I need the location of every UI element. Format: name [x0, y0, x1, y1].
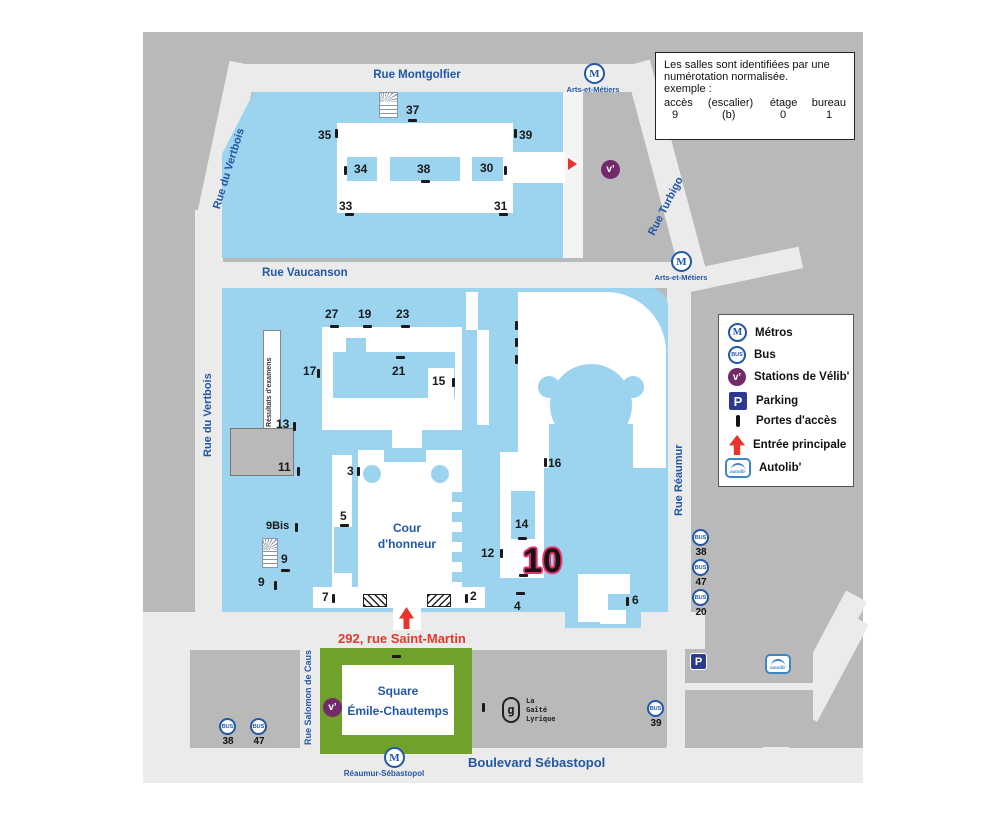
legend-row-autolib: autolib’ Autolib' [725, 458, 801, 478]
building-21-annex [346, 338, 366, 352]
access-door-tick [295, 523, 298, 532]
metro-icon: M [584, 63, 605, 84]
access-number-4: 4 [514, 599, 521, 613]
bus-stop-icon: BUS [219, 718, 236, 735]
legend-row-entree: Entrée principale [728, 435, 846, 455]
access-door-tick [330, 325, 339, 328]
access-number-9b: 9 [258, 575, 265, 589]
cour-tower-west [363, 465, 381, 483]
access-door-tick [626, 597, 629, 606]
legend-row-metro: M Métros [728, 323, 793, 342]
info-col-etage: étage [770, 97, 812, 109]
info-val-escalier: (b) [708, 109, 770, 121]
velib-station-icon: v’ [323, 698, 342, 717]
parking-icon: P [690, 653, 707, 670]
street-label-vaucanson: Rue Vaucanson [262, 267, 348, 279]
autolib-icon-text: autolib’ [730, 470, 746, 474]
velib-station-icon: v’ [601, 160, 620, 179]
access-door-tick [515, 338, 518, 347]
autolib-icon: autolib’ [725, 458, 751, 478]
velib-station-icon: v’ [728, 368, 746, 386]
metro-icon: M [728, 323, 747, 342]
access-door-tick [408, 119, 417, 122]
legend-label-entree: Entrée principale [753, 439, 846, 451]
info-val-acces: 9 [664, 109, 708, 121]
street-label-salomon: Rue Salomon de Caus [303, 650, 313, 745]
cour-tooth-1 [452, 492, 462, 502]
gaite-label-1: La [526, 697, 534, 705]
access-door-tick [274, 581, 277, 590]
info-val-etage: 0 [770, 109, 812, 121]
gaite-lyrique-logo: g [502, 697, 520, 723]
legend-row-bus: BUS Bus [728, 346, 776, 364]
gaite-label-2: Gaîté [526, 706, 547, 714]
access-number-11: 11 [278, 460, 291, 474]
access-door-tick [332, 594, 335, 603]
church-dome-east [622, 376, 644, 398]
access-door-tick [500, 549, 503, 558]
square-label-2: Émile-Chautemps [343, 704, 453, 718]
info-val-bureau: 1 [812, 109, 832, 121]
address-label: 292, rue Saint-Martin [338, 631, 466, 646]
legend-row-parking: P Parking [728, 391, 798, 411]
info-line-3: exemple : [664, 83, 846, 95]
access-door-tick [345, 213, 354, 216]
access-door-tick [515, 321, 518, 330]
access-door-tick [401, 325, 410, 328]
access-number-12: 12 [481, 546, 494, 560]
legend-label-portes: Portes d'accès [756, 415, 837, 427]
access-door-tick [482, 703, 485, 712]
bus-line-39: 39 [647, 718, 665, 729]
square-label-1: Square [343, 684, 453, 698]
info-col-bureau: bureau [812, 97, 846, 109]
access-number-30: 30 [480, 161, 493, 175]
door-column-mid [477, 330, 489, 425]
access-door-tick [363, 325, 372, 328]
access-number-31: 31 [494, 199, 507, 213]
access-number-6: 6 [632, 593, 639, 607]
cour-honneur-label-2: d'honneur [352, 537, 462, 551]
metro-station-arts-et-metiers-1: Arts-et-Métiers [553, 85, 633, 94]
access-number-13: 13 [276, 417, 289, 431]
square-inner [342, 665, 454, 735]
legend-row-velib: v’ Stations de Vélib' [728, 368, 849, 386]
access-door-tick [421, 180, 430, 183]
street-label-montgolfier: Rue Montgolfier [357, 69, 477, 81]
bus-line-47: 47 [692, 577, 710, 588]
bus-stop-icon: BUS [692, 559, 709, 576]
south-east-building-c [600, 610, 626, 624]
cour-tower-east [431, 465, 449, 483]
info-col-acces: accès [664, 97, 708, 109]
west-building-room5 [334, 527, 352, 573]
access-door-tick [516, 592, 525, 595]
legend-label-autolib: Autolib' [759, 462, 801, 474]
stairs-icon-north [379, 92, 398, 118]
access-number-23: 23 [396, 307, 409, 321]
access-door-tick [736, 415, 740, 427]
room-numbering-info-box: Les salles sont identifiées par une numé… [655, 52, 855, 140]
access-door-tick [518, 537, 527, 540]
bus-line-38: 38 [692, 547, 710, 558]
access-door-tick [335, 129, 338, 138]
bus-line-20: 20 [692, 607, 710, 618]
access-number-37: 37 [406, 103, 419, 117]
access-number-34: 34 [354, 162, 367, 176]
autolib-icon: autolib’ [765, 654, 791, 674]
access-number-9bis: 9Bis [266, 520, 289, 532]
legend-row-portes: Portes d'accès [728, 415, 837, 427]
bus-stop-icon: BUS [692, 529, 709, 546]
access-number-5: 5 [340, 509, 347, 523]
bus-line-38-sw: 38 [219, 736, 237, 747]
access-number-10-highlight: 10 [523, 542, 563, 581]
access-number-9a: 9 [281, 552, 288, 566]
access-door-tick [340, 524, 349, 527]
bus-line-47-sw: 47 [250, 736, 268, 747]
metro-icon: M [384, 747, 405, 768]
access-number-38: 38 [417, 162, 430, 176]
access-door-tick [293, 422, 296, 431]
street-label-sebastopol: Boulevard Sébastopol [468, 755, 605, 770]
access-door-tick [357, 467, 360, 476]
legend-label-velib: Stations de Vélib' [754, 371, 849, 383]
legend-label-parking: Parking [756, 395, 798, 407]
autolib-icon-text: autolib’ [770, 666, 786, 670]
cour-top-notch [384, 448, 426, 462]
church-base [549, 424, 633, 468]
main-entrance-arrow [729, 435, 745, 455]
access-door-tick [344, 166, 347, 175]
legend-label-metros: Métros [755, 327, 793, 339]
access-number-33: 33 [339, 199, 352, 213]
access-number-39: 39 [519, 128, 532, 142]
access-door-tick [519, 574, 528, 577]
legend-box: M Métros BUS Bus v’ Stations de Vélib' P… [718, 314, 854, 487]
parking-icon: P [728, 391, 748, 411]
door-column-north [466, 292, 478, 330]
metro-station-arts-et-metiers-2: Arts-et-Métiers [641, 273, 721, 282]
cour-tooth-5 [452, 572, 462, 582]
street-label-reaumur: Rue Réaumur [673, 444, 685, 516]
access-number-17: 17 [303, 364, 316, 378]
metro-icon: M [671, 251, 692, 272]
access-door-tick [514, 129, 517, 138]
info-col-escalier: (escalier) [708, 97, 770, 109]
access-door-tick [544, 458, 547, 467]
access-door-tick [452, 378, 455, 387]
info-line-2: numérotation normalisée. [664, 71, 846, 83]
metro-station-reaumur-sebastopol: Réaumur-Sébastopol [332, 769, 436, 778]
access-number-35: 35 [318, 128, 331, 142]
exam-results-label: Résultats d'examens [266, 332, 273, 427]
building-14-room [511, 491, 535, 539]
access-number-27: 27 [325, 307, 338, 321]
gaite-label-3: Lyrique [526, 715, 556, 723]
access-number-21: 21 [392, 364, 405, 378]
legend-label-bus: Bus [754, 349, 776, 361]
cour-honneur-label-1: Cour [352, 521, 462, 535]
access-door-tick [281, 569, 290, 572]
church-dome-west [538, 376, 560, 398]
access-number-7: 7 [322, 590, 329, 604]
access-door-tick [515, 355, 518, 364]
access-door-tick [499, 213, 508, 216]
access-door-tick [504, 166, 507, 175]
access-door-tick [317, 369, 320, 378]
hatched-area-west [363, 594, 387, 607]
access-number-14: 14 [515, 517, 528, 531]
block-south-east [685, 690, 813, 747]
bus-stop-icon: BUS [250, 718, 267, 735]
access-number-15: 15 [432, 374, 445, 388]
bus-stop-icon: BUS [728, 346, 746, 364]
street-reaumur-south [666, 612, 685, 748]
street-label-vertbois-left: Rue du Vertbois [202, 373, 214, 457]
access-number-19: 19 [358, 307, 371, 321]
access-door-tick [465, 594, 468, 603]
access-number-16: 16 [548, 456, 561, 470]
block-south-west [190, 650, 300, 748]
access-door-tick [392, 655, 401, 658]
bus-stop-icon: BUS [692, 589, 709, 606]
south-east-building-a [578, 574, 630, 594]
access-door-tick [297, 467, 300, 476]
stairs-icon-west [262, 538, 278, 568]
street-strip-top-east [563, 92, 583, 258]
access-number-3: 3 [347, 464, 354, 478]
north-building-corridor [513, 152, 565, 183]
campus-map: Rue Montgolfier Rue du Vertbois Rue du V… [0, 0, 1001, 817]
access-door-tick [396, 356, 405, 359]
access-number-2: 2 [470, 589, 477, 603]
cour-tooth-4 [452, 552, 462, 562]
hatched-area-east [427, 594, 451, 607]
bus-stop-icon: BUS [647, 700, 664, 717]
info-line-1: Les salles sont identifiées par une [664, 59, 846, 71]
